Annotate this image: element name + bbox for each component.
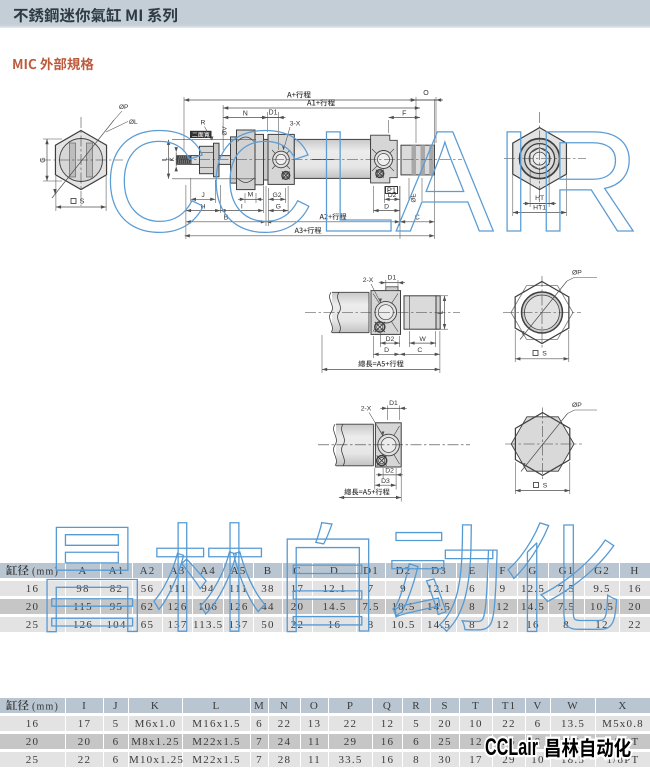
svg-text:D3: D3: [381, 478, 390, 485]
svg-text:S: S: [80, 199, 85, 206]
svg-text:W: W: [419, 336, 426, 343]
svg-text:D: D: [384, 347, 389, 354]
svg-text:D1: D1: [389, 400, 398, 407]
svg-text:D2: D2: [386, 336, 395, 343]
svg-text:2-X: 2-X: [361, 406, 372, 413]
svg-text:C: C: [417, 347, 422, 354]
svg-text:D2: D2: [385, 468, 394, 475]
svg-text:D1: D1: [388, 275, 397, 282]
svg-text:O: O: [423, 90, 429, 97]
svg-text:2-X: 2-X: [363, 277, 374, 284]
svg-text:ØP: ØP: [572, 402, 582, 409]
svg-text:ØP: ØP: [572, 270, 582, 277]
svg-text:CCLAIR: CCLAIR: [103, 101, 640, 262]
svg-text:S: S: [542, 351, 547, 358]
svg-text:S: S: [543, 483, 548, 490]
svg-text:CCLair: CCLair: [485, 734, 538, 761]
